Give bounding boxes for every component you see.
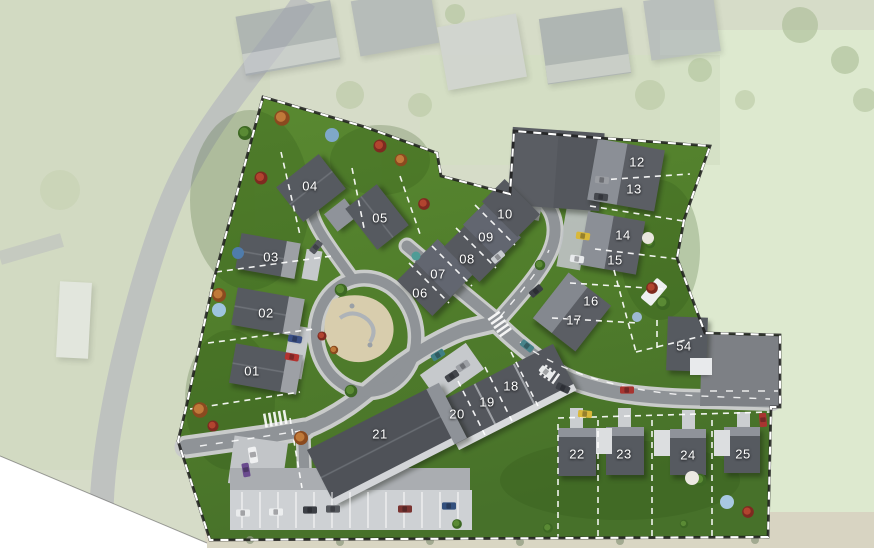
site-plan-canvas: 0102030405060708091012131415161754181920… xyxy=(0,0,874,548)
garden-ball xyxy=(412,252,421,261)
tree xyxy=(345,385,358,398)
car xyxy=(326,505,340,512)
tree xyxy=(543,523,553,533)
house-22 xyxy=(558,428,596,476)
garden-pool xyxy=(232,247,244,259)
garden-pool xyxy=(720,495,734,509)
car xyxy=(236,509,250,516)
bush xyxy=(395,154,408,167)
car xyxy=(398,505,412,512)
bush xyxy=(374,140,387,153)
garden-ball xyxy=(642,232,654,244)
tree xyxy=(335,284,348,297)
bush xyxy=(294,431,308,445)
bush xyxy=(192,402,207,417)
garden-pool xyxy=(325,128,339,142)
bush xyxy=(274,110,289,125)
bush xyxy=(646,282,658,294)
bush xyxy=(418,198,430,210)
bush xyxy=(317,331,326,340)
car xyxy=(620,386,634,393)
garden-ball xyxy=(685,471,699,485)
bush xyxy=(330,346,338,354)
tree xyxy=(238,126,252,140)
site-plan-graphic xyxy=(0,0,874,548)
house-54-garage xyxy=(690,358,712,375)
house-14-15 xyxy=(579,211,645,274)
car xyxy=(303,506,317,513)
bush xyxy=(255,172,268,185)
bush xyxy=(742,506,754,518)
car xyxy=(759,413,767,428)
car xyxy=(578,410,593,418)
tree xyxy=(535,260,546,271)
bush xyxy=(207,420,218,431)
bush xyxy=(212,288,226,302)
car xyxy=(269,508,283,515)
car xyxy=(595,176,610,185)
garden-pool xyxy=(632,312,642,322)
tree xyxy=(452,519,462,529)
tree xyxy=(656,296,670,310)
tree xyxy=(680,520,688,528)
house-24 xyxy=(670,429,706,475)
garden-pool xyxy=(212,303,226,317)
house-12-13 xyxy=(587,139,665,212)
faded-bottom-right xyxy=(770,512,874,548)
car xyxy=(442,502,456,509)
garage-24-25 xyxy=(714,430,730,456)
garage-23-24 xyxy=(654,430,670,456)
car xyxy=(594,193,609,202)
